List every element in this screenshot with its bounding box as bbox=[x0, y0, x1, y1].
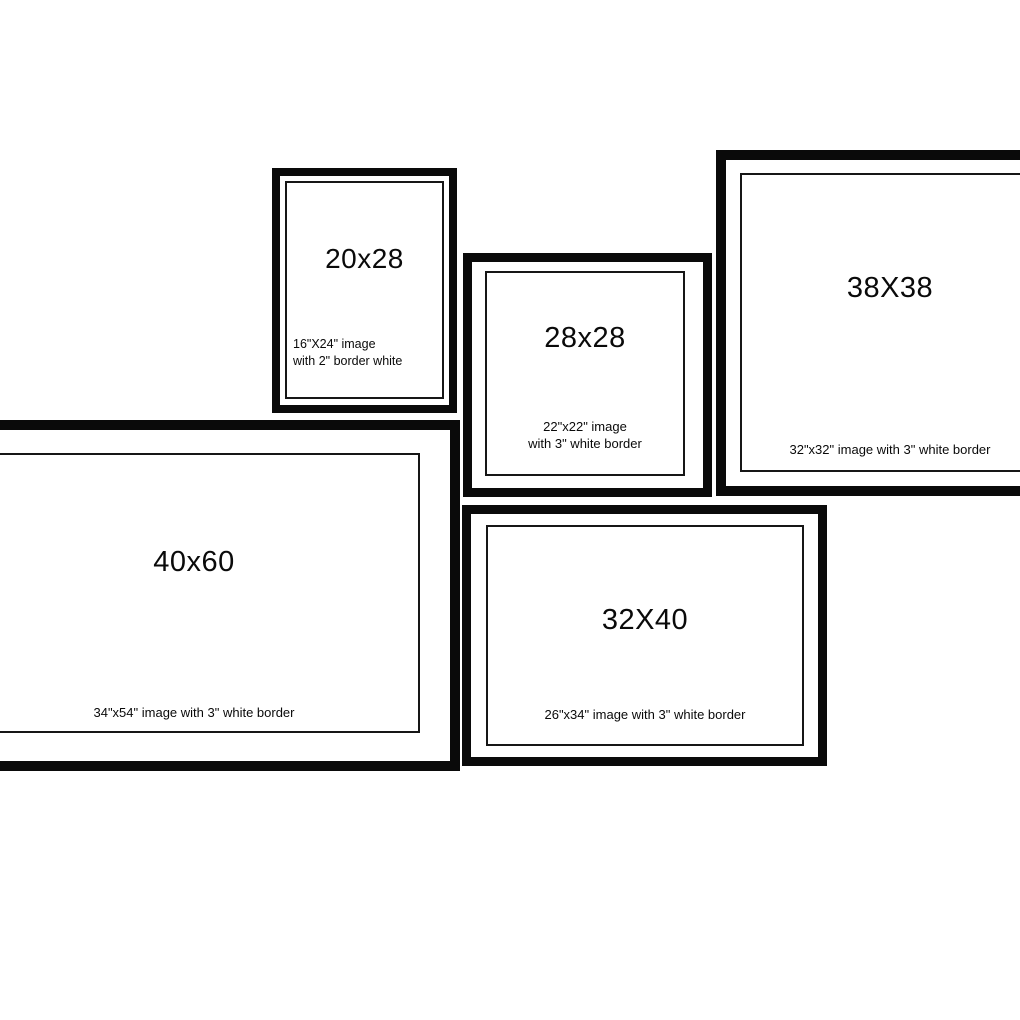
caption-line-1: 22"x22" image bbox=[487, 418, 683, 436]
image-area: 32X40 26"x34" image with 3" white border bbox=[486, 525, 804, 746]
caption-line-2: with 3" white border bbox=[487, 435, 683, 453]
frame-size-label: 40x60 bbox=[0, 546, 418, 579]
frame-32x40: 32X40 26"x34" image with 3" white border bbox=[462, 505, 827, 766]
caption-line-2: with 2" border white bbox=[293, 353, 402, 370]
frame-caption: 34"x54" image with 3" white border bbox=[0, 704, 418, 722]
frame-38x38: 38X38 32"x32" image with 3" white border bbox=[716, 150, 1020, 496]
frame-caption: 16"X24" image with 2" border white bbox=[293, 336, 402, 370]
frame-size-label: 32X40 bbox=[488, 604, 802, 637]
image-area: 38X38 32"x32" image with 3" white border bbox=[740, 173, 1020, 472]
image-area: 40x60 34"x54" image with 3" white border bbox=[0, 453, 420, 733]
gallery-wall-frame-size-diagram: { "canvas": { "background": "#ffffff", "… bbox=[0, 0, 1020, 1020]
caption-line-1: 34"x54" image with 3" white border bbox=[0, 704, 418, 722]
frame-28x28: 28x28 22"x22" image with 3" white border bbox=[463, 253, 712, 497]
frame-size-label: 20x28 bbox=[287, 243, 442, 275]
frame-20x28: 20x28 16"X24" image with 2" border white bbox=[272, 168, 457, 413]
frame-caption: 32"x32" image with 3" white border bbox=[742, 441, 1020, 459]
frame-size-label: 28x28 bbox=[487, 322, 683, 355]
caption-line-1: 32"x32" image with 3" white border bbox=[742, 441, 1020, 459]
image-area: 28x28 22"x22" image with 3" white border bbox=[485, 271, 685, 476]
caption-line-1: 16"X24" image bbox=[293, 336, 402, 353]
frame-caption: 22"x22" image with 3" white border bbox=[487, 418, 683, 453]
frame-caption: 26"x34" image with 3" white border bbox=[488, 706, 802, 724]
frame-size-label: 38X38 bbox=[742, 272, 1020, 305]
image-area: 20x28 16"X24" image with 2" border white bbox=[285, 181, 444, 399]
frame-40x60: 40x60 34"x54" image with 3" white border bbox=[0, 420, 460, 771]
caption-line-1: 26"x34" image with 3" white border bbox=[488, 706, 802, 724]
